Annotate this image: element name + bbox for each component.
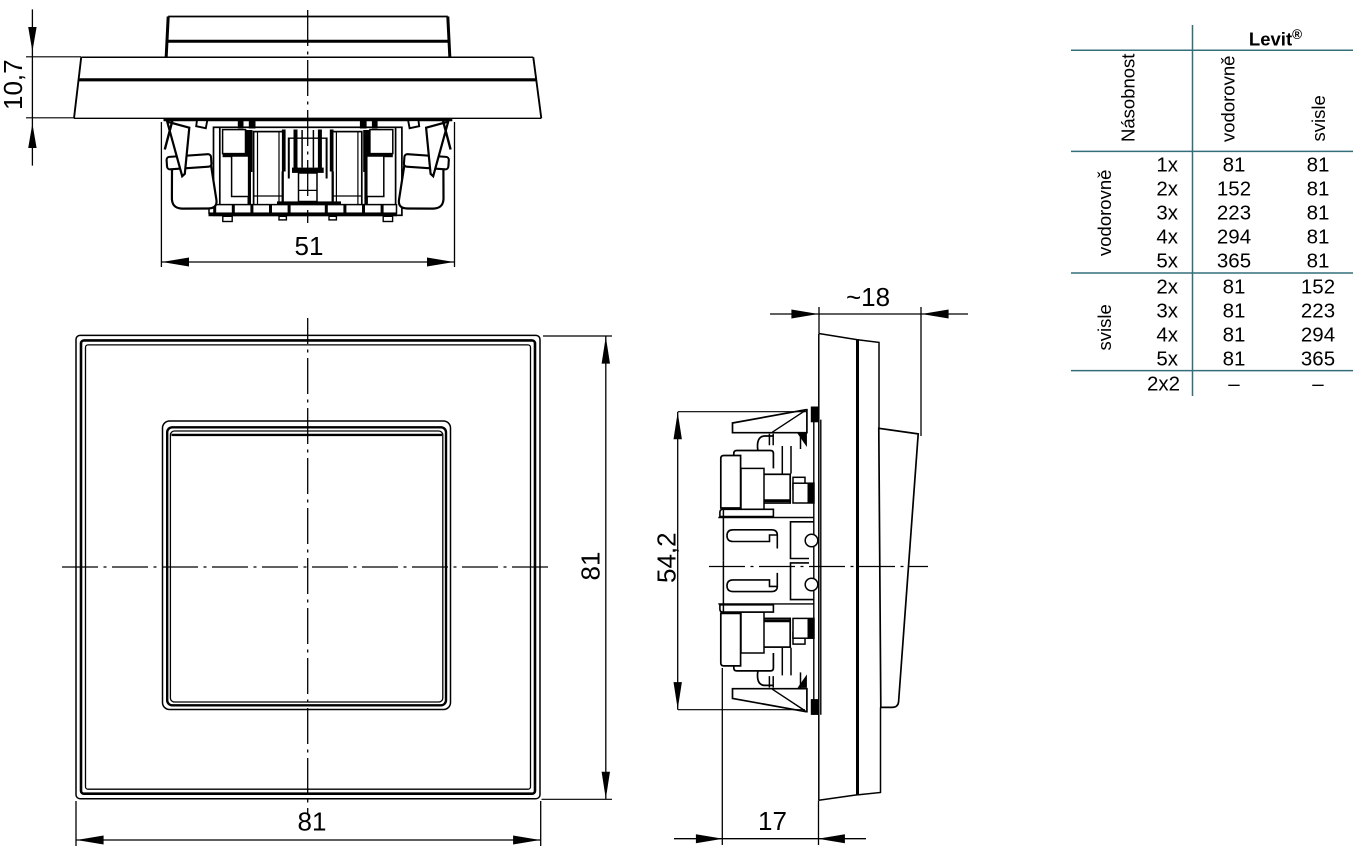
svg-text:5x: 5x (1156, 250, 1178, 273)
svg-text:–: – (1228, 373, 1240, 396)
svg-text:81: 81 (1223, 348, 1246, 371)
svg-text:17: 17 (758, 806, 787, 836)
svg-text:81: 81 (1307, 250, 1330, 273)
svg-text:4x: 4x (1156, 324, 1178, 347)
svg-text:81: 81 (1223, 300, 1246, 323)
svg-text:2x2: 2x2 (1147, 373, 1180, 396)
svg-text:365: 365 (1301, 348, 1335, 371)
svg-text:223: 223 (1301, 300, 1335, 323)
svg-text:365: 365 (1217, 250, 1251, 273)
svg-text:294: 294 (1301, 324, 1335, 347)
svg-text:223: 223 (1217, 202, 1251, 225)
svg-text:81: 81 (1307, 202, 1330, 225)
svg-text:vodorovně: vodorovně (1094, 170, 1115, 256)
svg-text:81: 81 (1223, 154, 1246, 177)
svg-text:1x: 1x (1156, 154, 1178, 177)
svg-text:2x: 2x (1156, 276, 1178, 299)
svg-text:152: 152 (1217, 178, 1251, 201)
svg-text:~18: ~18 (846, 282, 890, 312)
svg-text:81: 81 (576, 552, 606, 581)
svg-text:81: 81 (1307, 154, 1330, 177)
svg-text:3x: 3x (1156, 202, 1178, 225)
svg-text:2x: 2x (1156, 178, 1178, 201)
svg-text:4x: 4x (1156, 226, 1178, 249)
svg-text:–: – (1312, 373, 1324, 396)
svg-text:54,2: 54,2 (652, 532, 682, 583)
svg-text:81: 81 (1223, 324, 1246, 347)
svg-text:svisle: svisle (1308, 95, 1329, 141)
svg-text:svisle: svisle (1094, 304, 1115, 350)
svg-text:152: 152 (1301, 276, 1335, 299)
svg-text:294: 294 (1217, 226, 1251, 249)
svg-text:81: 81 (1307, 226, 1330, 249)
svg-text:3x: 3x (1156, 300, 1178, 323)
svg-text:81: 81 (298, 807, 327, 837)
svg-text:10,7: 10,7 (0, 59, 28, 110)
svg-text:5x: 5x (1156, 348, 1178, 371)
svg-text:Násobnost: Násobnost (1118, 54, 1139, 142)
svg-text:vodorovně: vodorovně (1218, 56, 1239, 142)
svg-text:51: 51 (295, 231, 324, 261)
svg-text:81: 81 (1223, 276, 1246, 299)
svg-text:81: 81 (1307, 178, 1330, 201)
